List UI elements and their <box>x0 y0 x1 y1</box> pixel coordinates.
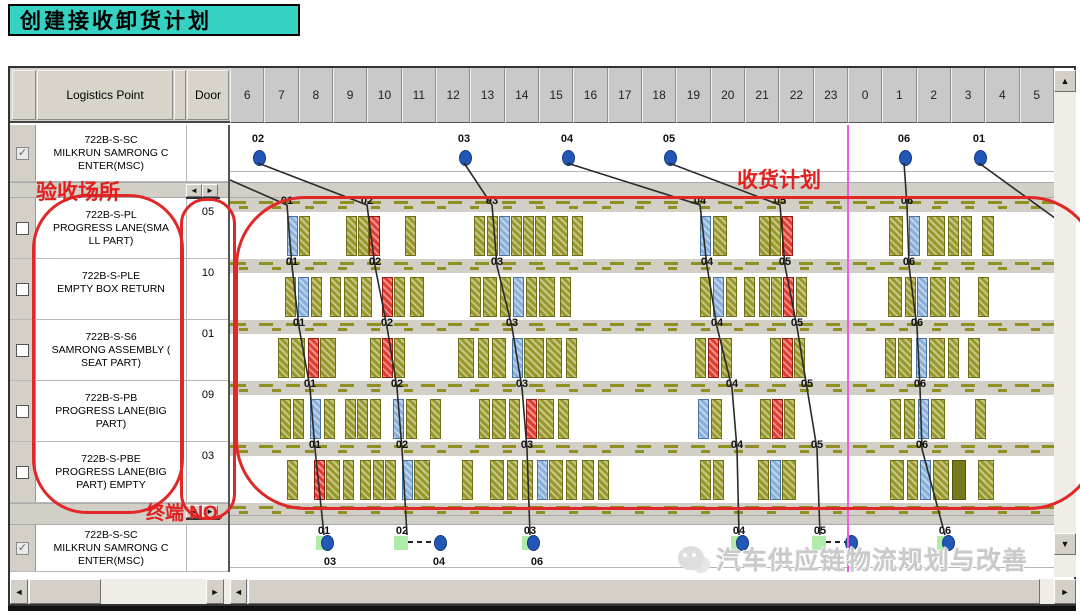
row-checkbox[interactable] <box>16 222 29 235</box>
door-header[interactable]: Door <box>187 70 229 120</box>
milkrun-dot[interactable] <box>664 150 677 166</box>
name-line: 722B-S-SC <box>36 134 186 147</box>
terminal-dot-row: 010203040506030406 <box>230 525 1054 572</box>
arrow-up-icon: ▲ <box>1061 76 1070 86</box>
spacer-column-header <box>174 70 186 120</box>
name-line: ENTER(MSC) <box>36 160 186 173</box>
hour-tick-1: 1 <box>882 68 916 123</box>
hline <box>230 171 1054 172</box>
terminal-dot[interactable] <box>434 535 447 551</box>
name-line: 722B-S-SC <box>36 529 186 542</box>
milkrun-dot[interactable] <box>974 150 987 166</box>
terminal-no-label: 终端 NO. <box>146 498 223 525</box>
hour-tick-11: 11 <box>402 68 436 123</box>
milkrun-dot[interactable] <box>459 150 472 166</box>
terminal-sub-label: 06 <box>531 556 543 568</box>
gantt-scroll-right-button[interactable]: ► <box>1054 579 1076 604</box>
name-line: MILKRUN SAMRONG C <box>36 542 186 555</box>
hour-tick-20: 20 <box>711 68 745 123</box>
receiving-plan-ellipse <box>235 196 1080 510</box>
name-line: ENTER(MSC) <box>36 555 186 568</box>
hour-tick-18: 18 <box>642 68 676 123</box>
hour-tick-19: 19 <box>676 68 710 123</box>
row-checkbox[interactable]: ✓ <box>16 147 29 160</box>
milkrun-dot[interactable] <box>253 150 266 166</box>
hour-tick-22: 22 <box>779 68 813 123</box>
row-checkbox[interactable] <box>16 405 29 418</box>
hour-tick-10: 10 <box>367 68 401 123</box>
gantt-scroll-left-button[interactable]: ◄ <box>230 579 247 604</box>
time-axis-header: 67891011121314151617181920212223012345 <box>230 68 1054 123</box>
terminal-dot[interactable] <box>527 535 540 551</box>
terminal-sub-label: 04 <box>433 556 445 568</box>
scroll-down-button[interactable]: ▼ <box>1054 533 1076 555</box>
row-selector-header <box>12 70 36 120</box>
milkrun-dot-label: 04 <box>561 133 573 145</box>
milkrun-dot[interactable] <box>899 150 912 166</box>
hour-tick-16: 16 <box>573 68 607 123</box>
milkrun-dot-label: 05 <box>663 133 675 145</box>
gantt-band <box>230 515 1054 525</box>
door-column-ellipse <box>180 198 236 520</box>
hour-tick-5: 5 <box>1020 68 1054 123</box>
hour-tick-4: 4 <box>985 68 1019 123</box>
mini-scroll-right-button[interactable]: ► <box>202 184 218 197</box>
milkrun-dot-label: 03 <box>458 133 470 145</box>
arrow-right-icon: ► <box>1061 587 1070 597</box>
col-divider <box>186 125 187 181</box>
hour-tick-13: 13 <box>470 68 504 123</box>
hour-tick-8: 8 <box>299 68 333 123</box>
hour-tick-6: 6 <box>230 68 264 123</box>
row-checkbox[interactable] <box>16 344 29 357</box>
table-row[interactable]: ✓722B-S-SCMILKRUN SAMRONG CENTER(MSC) <box>10 125 230 182</box>
row-checkbox[interactable] <box>16 466 29 479</box>
acceptance-place-label: 验收场所 <box>36 176 120 206</box>
terminal-dot[interactable] <box>736 535 749 551</box>
hour-tick-23: 23 <box>814 68 848 123</box>
row-checkbox[interactable]: ✓ <box>16 542 29 555</box>
hline <box>230 567 1054 568</box>
terminal-green-marker[interactable] <box>394 536 408 550</box>
table-hscroll-thumb[interactable] <box>29 579 101 604</box>
terminal-sub-label: 03 <box>324 556 336 568</box>
col-divider <box>186 525 187 571</box>
milkrun-dot[interactable] <box>562 150 575 166</box>
page-title: 创建接收卸货计划 <box>8 4 300 36</box>
hour-tick-0: 0 <box>848 68 882 123</box>
hour-tick-12: 12 <box>436 68 470 123</box>
row-checkbox[interactable] <box>16 283 29 296</box>
gantt-hscroll-thumb[interactable] <box>248 579 1040 604</box>
arrow-left-icon: ◄ <box>234 587 243 597</box>
table-scroll-left-button[interactable]: ◄ <box>10 579 28 604</box>
terminal-green-marker[interactable] <box>812 536 826 550</box>
table-row[interactable]: ✓722B-S-SCMILKRUN SAMRONG CENTER(MSC) <box>10 525 230 572</box>
hour-tick-9: 9 <box>333 68 367 123</box>
hour-tick-21: 21 <box>745 68 779 123</box>
gantt-hscrollbar[interactable]: ◄ <box>230 579 1054 604</box>
bottom-divider <box>8 606 1076 611</box>
arrow-down-icon: ▼ <box>1061 539 1070 549</box>
terminal-dot[interactable] <box>321 535 334 551</box>
table-hscrollbar[interactable]: ◄ ► <box>10 579 230 604</box>
hour-tick-7: 7 <box>264 68 298 123</box>
hour-tick-14: 14 <box>505 68 539 123</box>
terminal-dot[interactable] <box>942 535 955 551</box>
arrow-right-icon: ► <box>211 587 220 597</box>
logistics-point-name: 722B-S-SCMILKRUN SAMRONG CENTER(MSC) <box>36 134 186 174</box>
hour-tick-2: 2 <box>917 68 951 123</box>
receiving-plan-label: 收货计划 <box>737 164 821 194</box>
logistics-point-name: 722B-S-SCMILKRUN SAMRONG CENTER(MSC) <box>36 529 186 569</box>
table-scroll-right-button[interactable]: ► <box>206 579 224 604</box>
scroll-up-button[interactable]: ▲ <box>1054 70 1076 92</box>
milkrun-dot-row: 020304050601 <box>230 125 1054 182</box>
arrow-left-icon: ◄ <box>15 587 24 597</box>
table-header-row: Logistics Point Door <box>10 68 230 123</box>
hour-tick-15: 15 <box>539 68 573 123</box>
hour-tick-17: 17 <box>608 68 642 123</box>
hour-tick-3: 3 <box>951 68 985 123</box>
milkrun-dot-label: 01 <box>973 133 985 145</box>
milkrun-dot-label: 02 <box>252 133 264 145</box>
acceptance-area-ellipse <box>32 194 184 514</box>
milkrun-dot-label: 06 <box>898 133 910 145</box>
door-mini-scroll[interactable]: ◄► <box>186 184 218 197</box>
mini-scroll-left-button[interactable]: ◄ <box>186 184 202 197</box>
logistics-point-header[interactable]: Logistics Point <box>37 70 173 120</box>
name-line: MILKRUN SAMRONG C <box>36 147 186 160</box>
